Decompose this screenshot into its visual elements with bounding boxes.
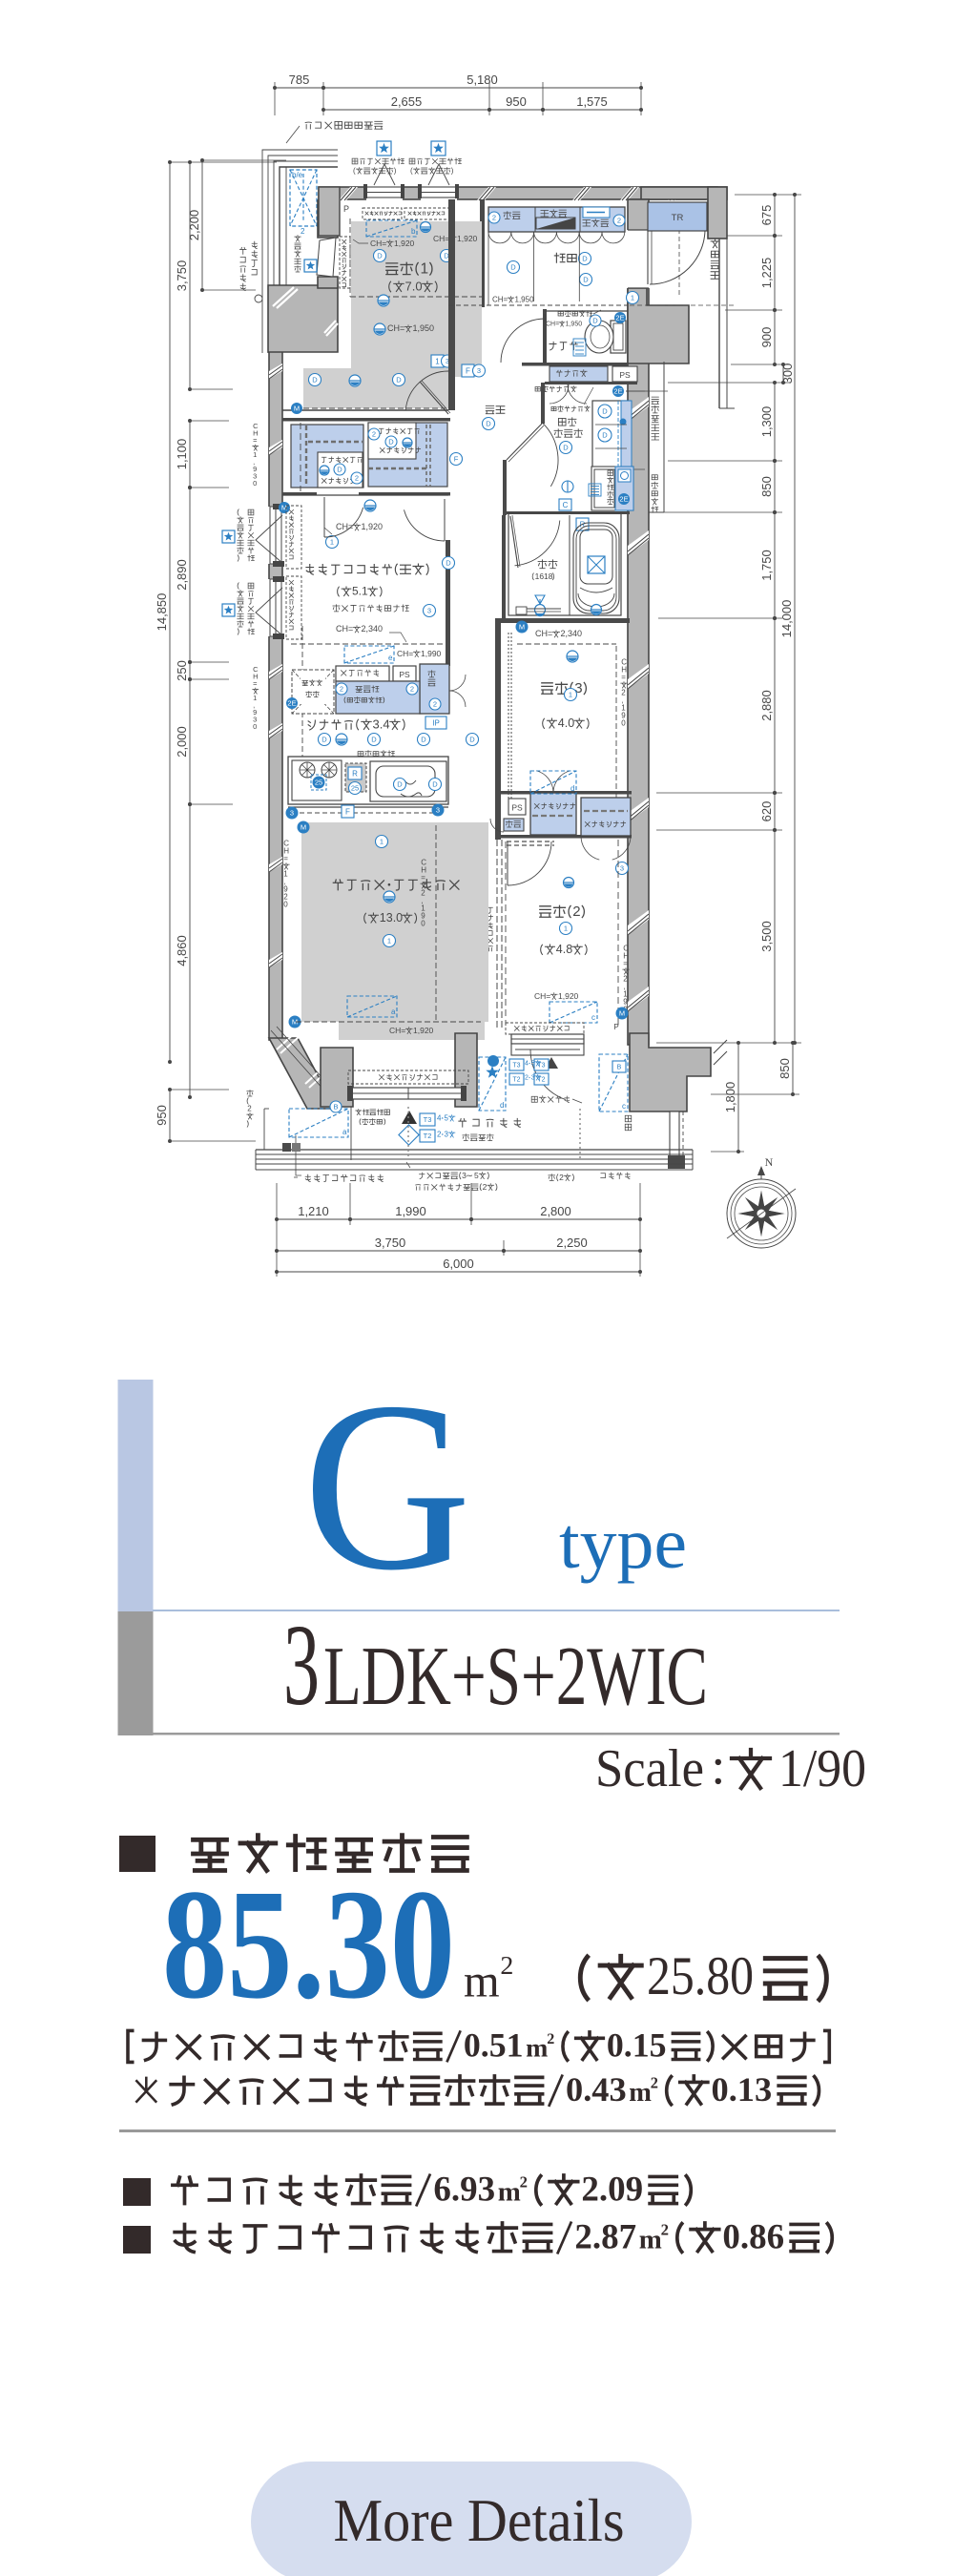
svg-text:T3: T3 — [512, 1063, 520, 1070]
svg-text:620: 620 — [759, 801, 774, 822]
svg-text:c: c — [622, 1102, 626, 1111]
svg-text:2: 2 — [340, 685, 343, 694]
svg-text:85.30: 85.30 — [162, 1857, 455, 2031]
svg-text:2: 2 — [355, 474, 359, 483]
svg-text:D: D — [337, 466, 342, 474]
svg-text:T2: T2 — [424, 1132, 432, 1140]
svg-text:2: 2 — [492, 214, 496, 222]
svg-text:3: 3 — [283, 1601, 320, 1730]
svg-text:D: D — [602, 431, 608, 440]
svg-text:B: B — [333, 1103, 338, 1111]
svg-text:2.87: 2.87 — [574, 2218, 636, 2257]
svg-text:2,890: 2,890 — [175, 559, 189, 591]
svg-text:m: m — [464, 1957, 500, 2007]
svg-text:T3: T3 — [424, 1115, 432, 1124]
svg-text:(: ( — [410, 166, 413, 175]
svg-text:3: 3 — [290, 809, 294, 818]
svg-text:PS: PS — [511, 803, 523, 813]
svg-text:1,920: 1,920 — [558, 991, 579, 1001]
svg-text:F: F — [466, 366, 470, 375]
svg-text:0.15: 0.15 — [607, 2026, 667, 2065]
svg-text:1,100: 1,100 — [175, 439, 189, 470]
svg-text:CH=: CH= — [492, 295, 508, 303]
svg-text:2: 2 — [500, 1951, 513, 1981]
svg-text:1: 1 — [387, 937, 391, 945]
svg-text:4,860: 4,860 — [175, 935, 189, 966]
svg-text:a: a — [391, 1008, 396, 1016]
svg-text:D: D — [432, 780, 438, 789]
svg-text:1,920: 1,920 — [362, 522, 384, 531]
svg-text:D: D — [602, 407, 608, 416]
svg-text:m: m — [639, 2225, 662, 2255]
svg-text:=: = — [623, 959, 628, 967]
svg-text:m: m — [526, 2034, 548, 2064]
svg-text:N: N — [765, 1155, 774, 1169]
svg-text:1,800: 1,800 — [723, 1082, 737, 1113]
svg-text:25: 25 — [315, 779, 322, 787]
svg-text:2,800: 2,800 — [540, 1204, 571, 1218]
svg-text:2,250: 2,250 — [556, 1236, 588, 1250]
svg-text:3,750: 3,750 — [375, 1236, 406, 1250]
svg-text:CH=: CH= — [387, 323, 404, 333]
svg-text:2E: 2E — [619, 495, 628, 504]
svg-text:2: 2 — [559, 1173, 564, 1182]
svg-text:=: = — [421, 873, 425, 882]
svg-text:TR: TR — [672, 213, 684, 223]
svg-text:675: 675 — [759, 205, 774, 226]
svg-text:Scale: Scale — [595, 1739, 704, 1798]
svg-text:2: 2 — [547, 2031, 554, 2047]
svg-text:4: 4 — [437, 1113, 442, 1122]
svg-text:More Details: More Details — [334, 2486, 625, 2554]
svg-text:2: 2 — [520, 2173, 528, 2192]
svg-text:2E: 2E — [615, 314, 624, 322]
svg-text:2: 2 — [617, 217, 621, 225]
svg-text:3: 3 — [620, 864, 624, 873]
svg-text:2: 2 — [410, 685, 414, 694]
svg-text:2: 2 — [437, 1130, 442, 1138]
svg-text:2,000: 2,000 — [175, 726, 189, 758]
svg-text:B: B — [617, 1065, 622, 1071]
svg-text:3: 3 — [462, 1171, 467, 1180]
svg-text:D: D — [446, 559, 451, 568]
svg-text:D: D — [371, 736, 377, 744]
svg-text:1,950: 1,950 — [566, 322, 583, 328]
svg-text:CH=: CH= — [433, 234, 449, 243]
svg-text:1618: 1618 — [535, 571, 553, 581]
svg-text:2: 2 — [301, 227, 305, 236]
svg-text:850: 850 — [778, 1058, 792, 1079]
svg-text:2: 2 — [483, 1182, 487, 1192]
svg-text:C: C — [563, 501, 569, 509]
svg-text:F: F — [454, 455, 459, 464]
svg-text:D: D — [592, 317, 598, 325]
svg-text:950: 950 — [155, 1105, 169, 1126]
svg-text:2: 2 — [433, 700, 437, 709]
svg-text:D: D — [486, 420, 491, 428]
svg-text:2: 2 — [572, 904, 580, 920]
svg-text:2: 2 — [661, 2221, 669, 2239]
svg-text:1,990: 1,990 — [395, 1204, 426, 1218]
svg-text:3: 3 — [531, 1075, 535, 1082]
svg-text:4.0: 4.0 — [558, 717, 574, 730]
svg-text:0.51: 0.51 — [464, 2026, 524, 2065]
svg-text:M: M — [301, 823, 306, 832]
svg-text:D: D — [321, 736, 327, 744]
svg-text:CH=: CH= — [535, 629, 552, 638]
svg-text:D: D — [563, 444, 569, 452]
svg-text:CH=: CH= — [389, 1026, 405, 1035]
svg-text:=: = — [253, 436, 258, 445]
svg-text:): ) — [451, 166, 454, 175]
svg-text:=: = — [621, 673, 626, 681]
svg-text:a: a — [342, 1128, 347, 1136]
svg-text:1,950: 1,950 — [413, 323, 435, 333]
svg-text:1,920: 1,920 — [413, 1026, 434, 1035]
svg-text:3,500: 3,500 — [759, 921, 774, 952]
svg-text:type: type — [559, 1504, 687, 1584]
svg-text:1,225: 1,225 — [759, 258, 774, 289]
svg-text:CH=: CH= — [336, 624, 353, 634]
svg-text:D: D — [421, 736, 426, 744]
svg-text:250: 250 — [175, 660, 189, 681]
svg-text:d: d — [500, 1101, 504, 1110]
svg-text:25.80: 25.80 — [647, 1946, 754, 2006]
svg-text:3: 3 — [477, 366, 481, 375]
svg-text:5.1: 5.1 — [352, 585, 368, 598]
svg-text:1,300: 1,300 — [759, 406, 774, 438]
svg-text:14,000: 14,000 — [779, 600, 794, 638]
svg-text:D: D — [583, 276, 589, 284]
svg-text:300: 300 — [780, 364, 795, 384]
svg-text:e: e — [388, 654, 393, 662]
svg-text:CH=: CH= — [546, 322, 559, 328]
svg-text:b/e: b/e — [292, 171, 303, 179]
svg-text:950: 950 — [506, 94, 527, 109]
svg-text:0: 0 — [621, 718, 626, 727]
svg-text:(: ( — [353, 166, 356, 175]
svg-text:1: 1 — [435, 357, 440, 365]
svg-text:D: D — [312, 376, 318, 384]
svg-text:1,210: 1,210 — [298, 1204, 329, 1218]
svg-text:2: 2 — [525, 1075, 529, 1082]
svg-text:5: 5 — [445, 1113, 449, 1122]
svg-text:1: 1 — [564, 924, 568, 933]
svg-text:4: 4 — [525, 1061, 529, 1068]
svg-text:1: 1 — [330, 538, 334, 547]
svg-text:1,750: 1,750 — [759, 550, 774, 581]
svg-text:2,200: 2,200 — [187, 210, 201, 241]
svg-text:2E: 2E — [613, 387, 622, 396]
svg-text:7.0: 7.0 — [405, 279, 423, 293]
svg-text:D: D — [396, 376, 402, 384]
svg-text:D: D — [397, 780, 403, 789]
svg-text:d: d — [570, 784, 574, 793]
svg-text:14,850: 14,850 — [155, 593, 169, 632]
svg-text:3: 3 — [445, 1130, 449, 1138]
svg-text:LDK+S+2WIC: LDK+S+2WIC — [323, 1631, 708, 1723]
svg-text:0.86: 0.86 — [722, 2218, 784, 2257]
svg-text:785: 785 — [289, 73, 310, 87]
svg-text:0: 0 — [253, 722, 257, 731]
svg-text:0: 0 — [283, 900, 288, 908]
svg-text:5,180: 5,180 — [467, 73, 498, 87]
svg-text:2: 2 — [247, 1104, 252, 1112]
svg-text:PS: PS — [619, 370, 631, 380]
svg-text:P: P — [343, 204, 349, 214]
svg-text:1: 1 — [631, 294, 634, 302]
svg-text:=: = — [253, 679, 258, 688]
svg-text:CH=: CH= — [397, 649, 413, 658]
svg-text:2.09: 2.09 — [581, 2171, 643, 2210]
svg-text:R: R — [352, 769, 358, 778]
svg-text:1,920: 1,920 — [394, 239, 415, 248]
svg-text:b: b — [411, 227, 416, 236]
svg-text:6.93: 6.93 — [433, 2171, 495, 2210]
svg-text:T2: T2 — [512, 1077, 520, 1084]
svg-text:=: = — [283, 854, 288, 862]
svg-text:3.4: 3.4 — [373, 717, 390, 731]
svg-text:M: M — [619, 1009, 625, 1018]
svg-text:0: 0 — [421, 919, 425, 927]
svg-text:D: D — [582, 255, 588, 263]
svg-text:0: 0 — [253, 479, 257, 488]
svg-text:G: G — [303, 1352, 471, 1620]
svg-text:1,920: 1,920 — [457, 234, 478, 243]
svg-text:1: 1 — [380, 838, 384, 846]
svg-text:5: 5 — [531, 1061, 535, 1068]
svg-text:D: D — [377, 252, 383, 260]
svg-text:3: 3 — [427, 607, 431, 615]
svg-text:6,000: 6,000 — [443, 1257, 474, 1271]
svg-text:M: M — [519, 623, 525, 632]
svg-text:1,950: 1,950 — [515, 295, 535, 303]
svg-text:1,575: 1,575 — [576, 94, 608, 109]
svg-text:M: M — [294, 405, 300, 413]
svg-text:2E: 2E — [287, 699, 296, 708]
svg-text:): ) — [394, 166, 397, 175]
svg-text:m: m — [629, 2078, 652, 2108]
svg-text:2: 2 — [372, 430, 376, 439]
svg-text:1: 1 — [569, 691, 572, 699]
svg-text:2: 2 — [651, 2073, 658, 2091]
svg-text:PS: PS — [399, 670, 410, 679]
svg-text:2,340: 2,340 — [561, 629, 583, 638]
svg-text:2,880: 2,880 — [759, 690, 774, 721]
svg-text:2,655: 2,655 — [391, 94, 423, 109]
svg-text:850: 850 — [759, 476, 774, 497]
svg-text:3,750: 3,750 — [175, 260, 189, 292]
svg-text:1: 1 — [421, 260, 429, 277]
svg-text:1,990: 1,990 — [421, 649, 442, 658]
svg-text:3: 3 — [436, 806, 440, 815]
svg-text:0.43: 0.43 — [566, 2070, 627, 2109]
svg-text:P: P — [613, 1023, 618, 1031]
svg-text:c: c — [591, 1013, 595, 1022]
svg-text:F: F — [345, 807, 350, 816]
svg-text:D: D — [510, 263, 516, 272]
svg-text:4.8: 4.8 — [556, 943, 572, 956]
svg-text:2,340: 2,340 — [362, 624, 384, 634]
svg-text:1/90: 1/90 — [778, 1739, 866, 1798]
svg-text:900: 900 — [759, 327, 774, 348]
svg-text:D: D — [388, 438, 394, 447]
svg-text:D: D — [469, 736, 475, 744]
svg-text:m: m — [498, 2177, 521, 2208]
svg-text:5: 5 — [474, 1171, 479, 1180]
svg-text:IP: IP — [432, 718, 440, 727]
svg-text:CH=: CH= — [534, 991, 550, 1001]
svg-text:25: 25 — [351, 784, 359, 793]
svg-text:CH=: CH= — [370, 239, 386, 248]
svg-text:13.0: 13.0 — [380, 911, 403, 924]
svg-text:0.13: 0.13 — [712, 2070, 773, 2109]
